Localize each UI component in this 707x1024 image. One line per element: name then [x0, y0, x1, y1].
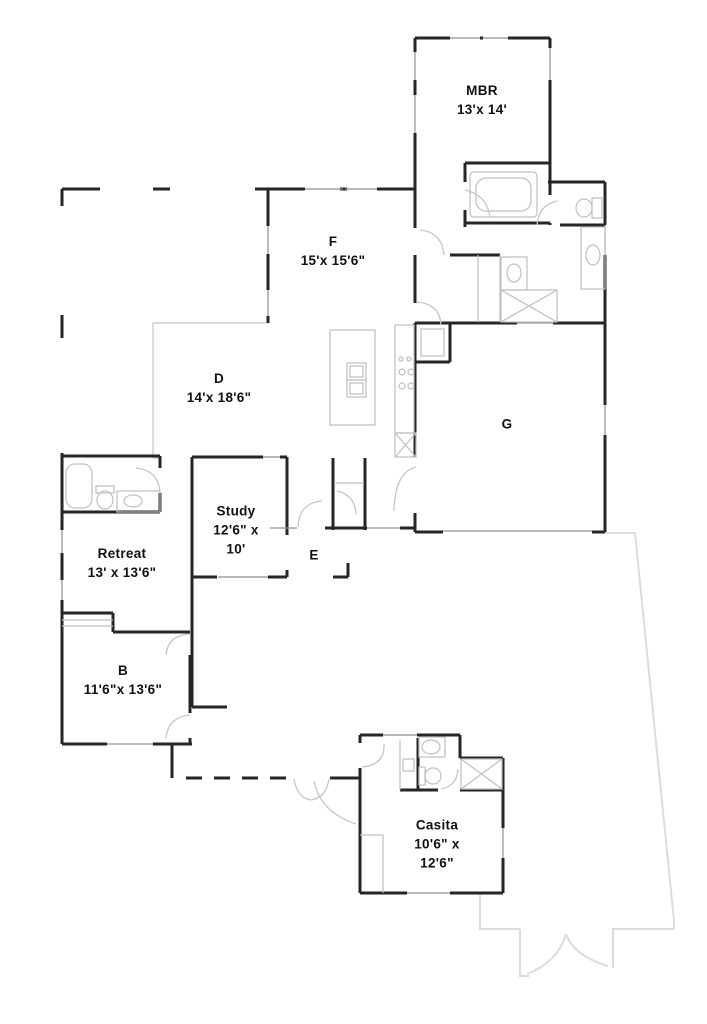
room-label-retreat: Retreat 13' x 13'6"	[88, 545, 157, 583]
room-name: Casita	[414, 817, 460, 836]
room-name: MBR	[457, 82, 507, 101]
room-name: F	[301, 233, 366, 252]
room-dims: 10'6" x	[414, 836, 460, 855]
room-name: B	[84, 662, 162, 681]
fixtures-layer	[62, 172, 605, 893]
room-dims: 15'x 15'6"	[301, 252, 366, 271]
courtyard-outline	[480, 533, 674, 976]
room-name: E	[309, 547, 318, 566]
room-dims: 10'	[213, 540, 259, 559]
room-name: D	[187, 370, 252, 389]
door-swing-arcs	[136, 190, 558, 824]
room-label-f: F 15'x 15'6"	[301, 233, 366, 271]
room-dims: 13' x 13'6"	[88, 564, 157, 583]
room-dims: 12'6"	[414, 854, 460, 873]
room-label-study: Study 12'6" x 10'	[213, 503, 259, 560]
room-name: Study	[213, 503, 259, 522]
floorplan-svg	[0, 0, 707, 1024]
room-dims: 13'x 14'	[457, 101, 507, 120]
room-dims: 14'x 18'6"	[187, 389, 252, 408]
room-label-b: B 11'6"x 13'6"	[84, 662, 162, 700]
room-name: Retreat	[88, 545, 157, 564]
walls-layer	[62, 38, 605, 893]
room-dims: 12'6" x	[213, 522, 259, 541]
room-label-d: D 14'x 18'6"	[187, 370, 252, 408]
room-label-e: E	[309, 547, 318, 566]
room-name: G	[502, 416, 513, 435]
room-label-casita: Casita 10'6" x 12'6"	[414, 817, 460, 874]
room-dims: 11'6"x 13'6"	[84, 681, 162, 700]
room-label-mbr: MBR 13'x 14'	[457, 82, 507, 120]
room-label-g: G	[502, 416, 513, 435]
courtyard-gate-arcs	[527, 934, 608, 974]
